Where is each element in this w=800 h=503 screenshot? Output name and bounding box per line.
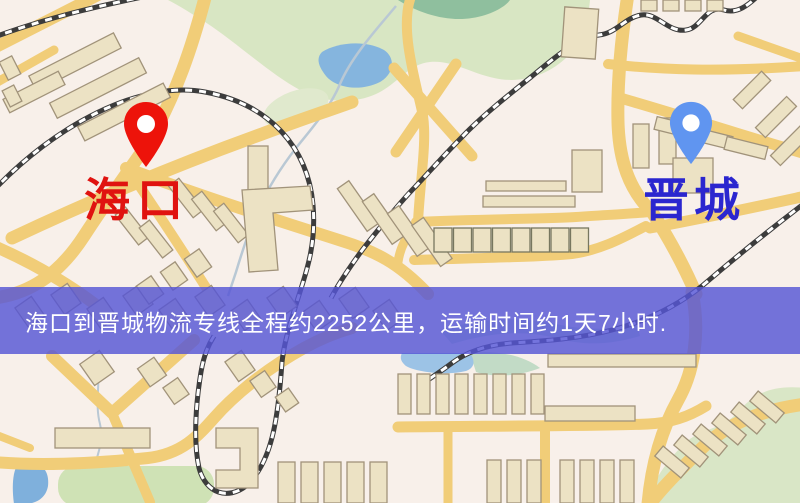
route-info-text: 海口到晋城物流专线全程约2252公里，运输时间约1天7小时.: [25, 304, 667, 338]
destination-city-label: 晋城: [643, 177, 745, 223]
route-info-banner: 海口到晋城物流专线全程约2252公里，运输时间约1天7小时.: [0, 287, 800, 354]
logistics-route-map: 海口 晋城 海口到晋城物流专线全程约2252公里，运输时间约1天7小时.: [0, 0, 800, 503]
map-canvas: [0, 0, 800, 503]
origin-city-label: 海口: [84, 177, 190, 223]
